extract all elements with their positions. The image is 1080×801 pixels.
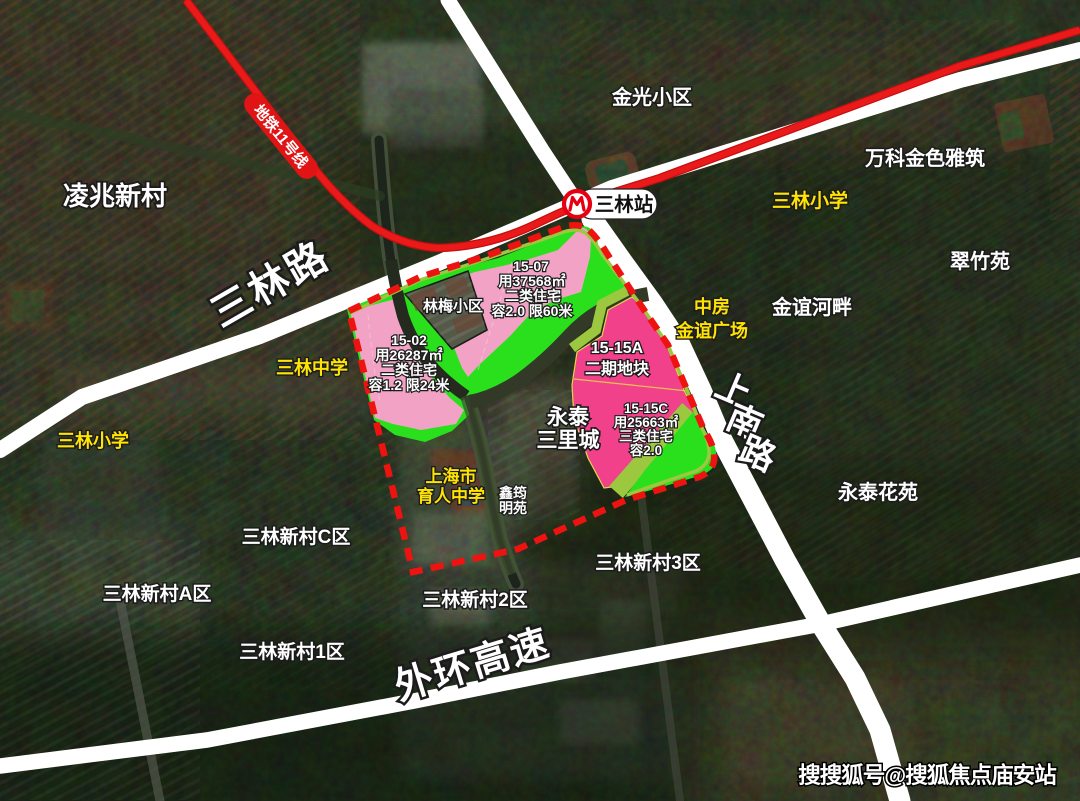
svg-text:中房: 中房 [694,296,730,317]
svg-text:二期地块: 二期地块 [585,359,650,378]
svg-text:万科金色雅筑: 万科金色雅筑 [864,146,985,170]
svg-text:凌兆新村: 凌兆新村 [63,181,167,211]
svg-text:三林小学: 三林小学 [57,430,129,451]
svg-text:15-07: 15-07 [513,258,549,274]
svg-text:15-02: 15-02 [391,332,427,348]
svg-text:林梅小区: 林梅小区 [423,297,483,315]
svg-text:三林新村2区: 三林新村2区 [422,588,528,611]
svg-text:上海市: 上海市 [426,466,477,486]
svg-text:翠竹苑: 翠竹苑 [950,249,1010,273]
svg-text:明苑: 明苑 [499,500,527,516]
svg-text:搜搜狐号@搜狐焦点庙安站: 搜搜狐号@搜狐焦点庙安站 [798,762,1057,788]
svg-text:三类住宅: 三类住宅 [619,428,673,444]
svg-text:三林小学: 三林小学 [772,189,848,212]
svg-text:金谊河畔: 金谊河畔 [771,295,852,319]
svg-text:15-15C: 15-15C [624,401,669,416]
svg-text:三林新村1区: 三林新村1区 [239,640,345,663]
svg-text:永泰: 永泰 [546,406,590,429]
svg-text:15-15A: 15-15A [591,340,644,357]
svg-text:用25663㎡: 用25663㎡ [614,414,679,430]
svg-text:容2.0 限60米: 容2.0 限60米 [491,303,574,319]
svg-text:三林新村C区: 三林新村C区 [242,525,351,548]
svg-text:永泰花苑: 永泰花苑 [837,480,918,504]
svg-text:三林站: 三林站 [595,193,654,216]
svg-text:三林新村3区: 三林新村3区 [595,551,701,574]
svg-text:用26287㎡: 用26287㎡ [376,347,443,363]
svg-text:容1.2 限24米: 容1.2 限24米 [368,377,451,393]
svg-text:用37568㎡: 用37568㎡ [499,273,566,289]
svg-text:鑫筠: 鑫筠 [498,485,527,501]
svg-text:三里城: 三里城 [537,428,600,452]
svg-text:金谊广场: 金谊广场 [675,320,748,341]
svg-text:二类住宅: 二类住宅 [381,362,437,378]
svg-text:二类住宅: 二类住宅 [505,288,561,304]
svg-text:三林新村A区: 三林新村A区 [103,582,212,605]
svg-text:容2.0: 容2.0 [629,442,662,458]
svg-text:三林中学: 三林中学 [276,357,348,378]
svg-text:育人中学: 育人中学 [417,486,485,506]
svg-text:金光小区: 金光小区 [611,85,692,109]
